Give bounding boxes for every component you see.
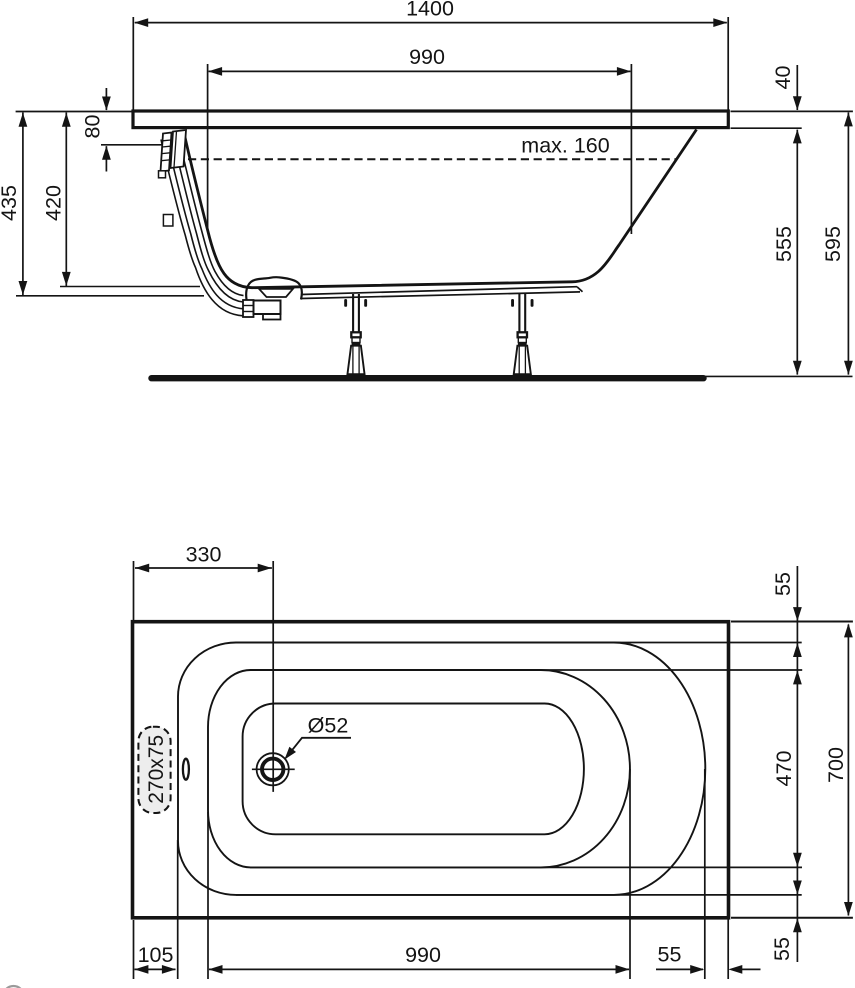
svg-text:105: 105	[138, 943, 174, 967]
svg-text:max. 160: max. 160	[521, 133, 609, 157]
svg-text:55: 55	[770, 937, 794, 961]
svg-text:595: 595	[821, 226, 845, 262]
svg-text:80: 80	[81, 115, 105, 139]
svg-text:270x75: 270x75	[145, 735, 168, 804]
svg-text:330: 330	[186, 543, 222, 567]
svg-text:40: 40	[771, 66, 795, 90]
svg-text:990: 990	[405, 943, 441, 967]
svg-text:700: 700	[824, 747, 848, 783]
svg-text:55: 55	[771, 572, 795, 596]
svg-text:Ø52: Ø52	[308, 713, 349, 737]
svg-text:470: 470	[772, 751, 796, 787]
svg-text:435: 435	[0, 185, 21, 221]
svg-text:1400: 1400	[406, 0, 454, 21]
svg-text:55: 55	[658, 943, 682, 967]
svg-text:555: 555	[772, 226, 796, 262]
svg-text:990: 990	[409, 45, 445, 69]
svg-text:420: 420	[42, 185, 66, 221]
